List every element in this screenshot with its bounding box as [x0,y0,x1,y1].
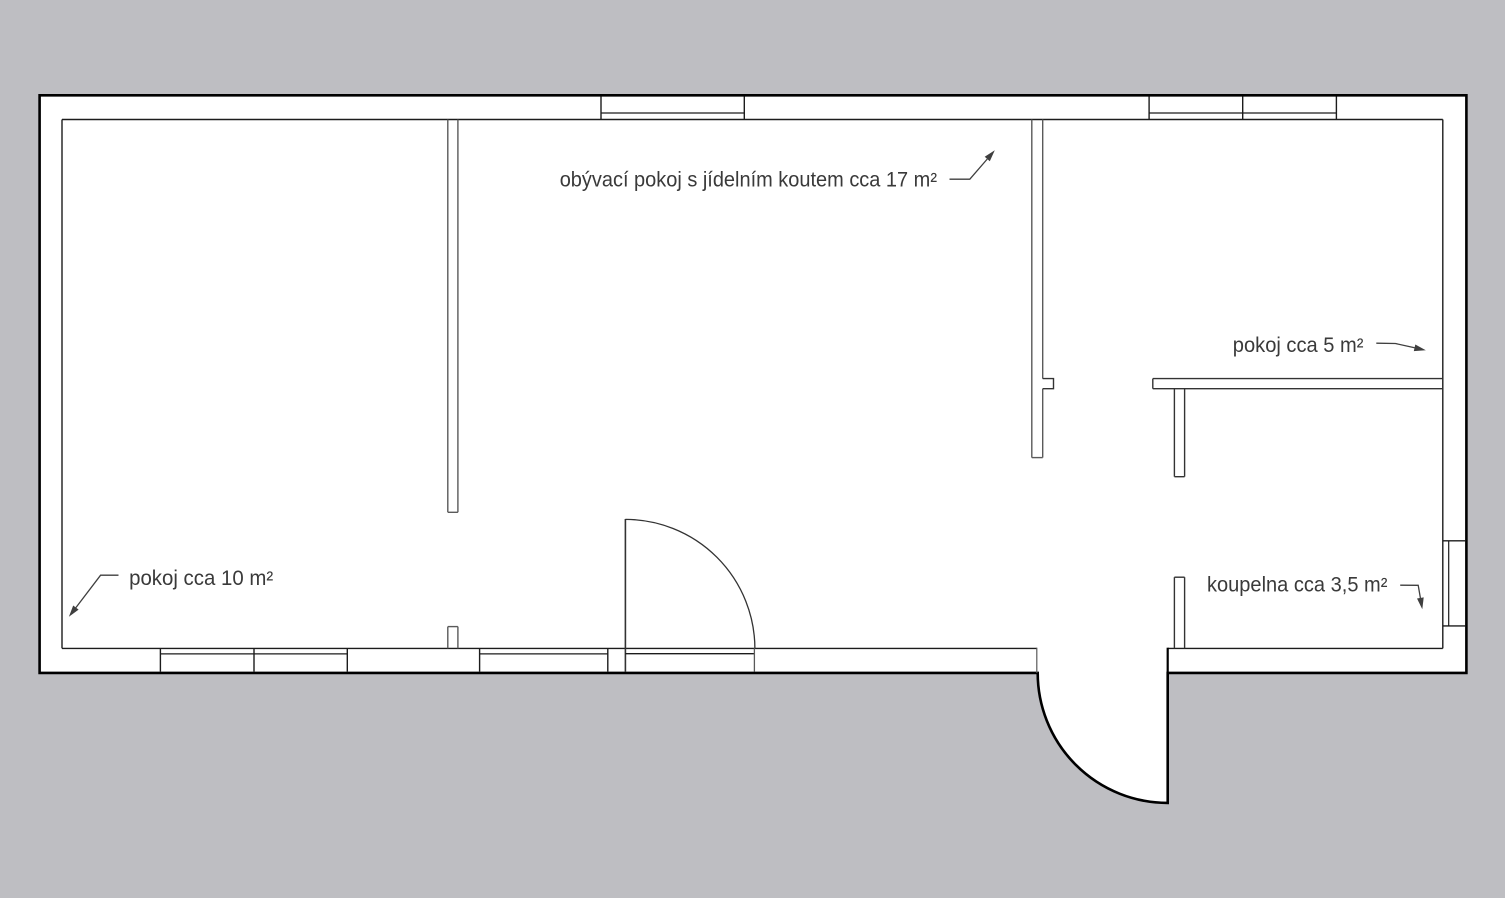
svg-text:pokoj cca 10 m²: pokoj cca 10 m² [129,566,273,592]
svg-text:obývací pokoj s jídelním koute: obývací pokoj s jídelním koutem cca 17 m… [560,167,937,193]
svg-text:koupelna cca 3,5 m²: koupelna cca 3,5 m² [1207,572,1387,598]
svg-text:pokoj cca 5 m²: pokoj cca 5 m² [1233,333,1364,359]
